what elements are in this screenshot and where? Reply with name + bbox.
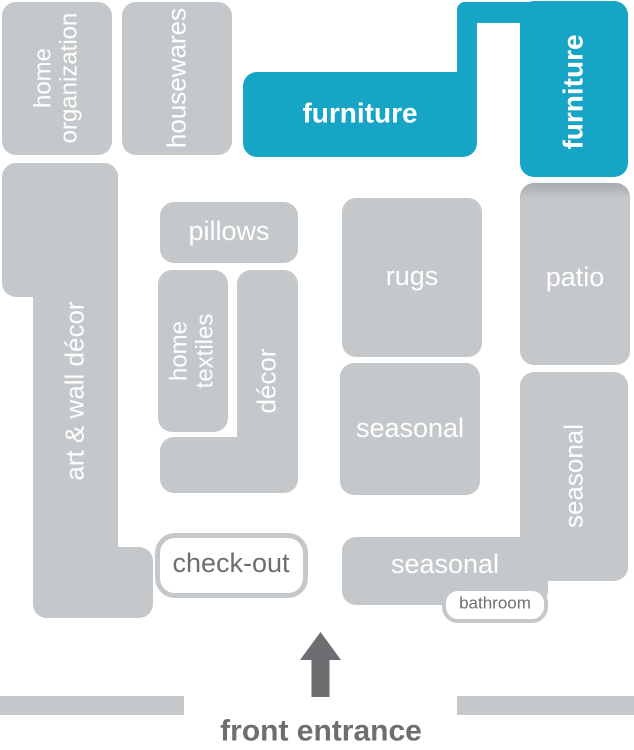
decor-label: décor [253,348,282,413]
home-organization-label: home organization [31,13,84,144]
seasonal-bottom-label: seasonal [391,550,499,580]
entrance-wall-left [0,696,184,715]
home-textiles-label-line2: textiles [193,314,219,389]
checkout-label: check-out [172,549,289,579]
home-organization-label-line1: home [31,13,57,144]
furniture-right-label: furniture [559,34,590,149]
seasonal-middle-label: seasonal [356,414,464,444]
front-entrance-label: front entrance [220,715,422,748]
rugs-label: rugs [386,262,439,292]
bathroom-label: bathroom [459,595,531,614]
patio-label: patio [546,263,605,293]
home-organization-label-line2: organization [57,13,83,144]
home-textiles-label: home textiles [167,314,220,389]
store-floor-map: home organization housewares furniture f… [0,0,634,750]
up-arrow-icon [300,632,341,697]
entrance-wall-right [457,696,634,715]
home-textiles-label-line1: home [167,314,193,389]
area-decor-foot [160,437,298,493]
area-art-wall-decor-foot [33,547,153,618]
furniture-main-label: furniture [302,99,417,130]
art-wall-decor-label: art & wall décor [61,301,90,480]
housewares-label: housewares [163,8,192,148]
pillows-label: pillows [188,217,269,247]
seasonal-right-label: seasonal [560,424,589,528]
